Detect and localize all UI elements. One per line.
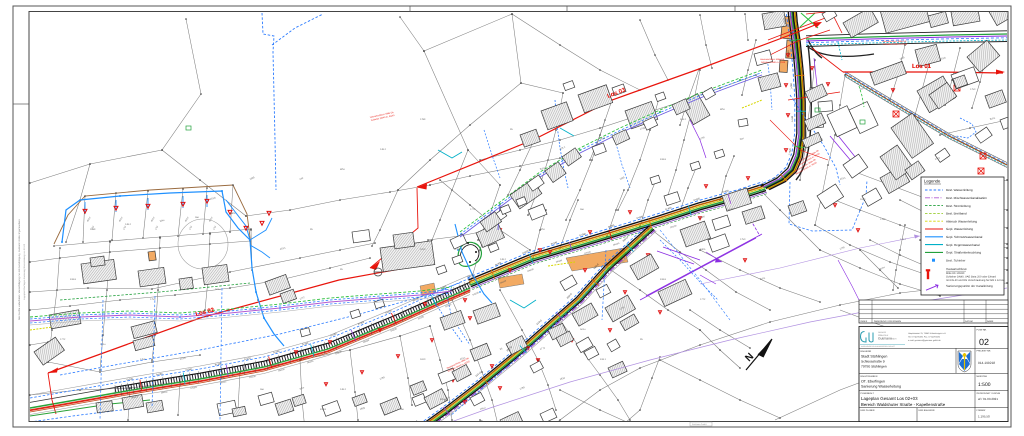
- svg-text:GmbH: GmbH: [890, 338, 897, 341]
- svg-text:1750: 1750: [740, 238, 746, 241]
- svg-text:Best. Schieber: Best. Schieber: [946, 258, 966, 262]
- svg-text:Best. Stromleitung: Best. Stromleitung: [946, 204, 971, 208]
- svg-text:Whs: Whs: [540, 228, 546, 231]
- svg-text:Best. Wasserleitung: Best. Wasserleitung: [946, 188, 973, 192]
- svg-text:af / 01.09.2021: af / 01.09.2021: [978, 397, 998, 401]
- svg-text:Schieber DN40 m. KG40: Schieber DN40 m. KG40: [761, 61, 786, 64]
- svg-text:INGENIEURE+PLANUNGSGESELLSCHAF: INGENIEURE+PLANUNGSGESELLSCHAFT: [861, 345, 895, 348]
- svg-text:1789: 1789: [455, 248, 461, 251]
- svg-text:Los 01: Los 01: [912, 63, 932, 70]
- svg-text:FORMAT: FORMAT: [977, 409, 987, 412]
- svg-text:1810: 1810: [420, 358, 426, 361]
- svg-text:1772: 1772: [470, 208, 476, 211]
- svg-text:1805: 1805: [230, 212, 236, 215]
- svg-text:433.6: 433.6: [320, 408, 327, 411]
- svg-text:Sanierungspunkte der Kanalleit: Sanierungspunkte der Kanalleitung: [946, 284, 993, 288]
- svg-text:1789: 1789: [880, 218, 886, 221]
- svg-text:PLANINHALT: PLANINHALT: [861, 392, 875, 395]
- svg-text:146.2: 146.2: [900, 238, 907, 241]
- svg-text:1+060: 1+060: [790, 82, 793, 89]
- svg-text:DER PLANER: DER PLANER: [861, 409, 875, 412]
- svg-text:Schlossstraße 9: Schlossstraße 9: [861, 360, 885, 364]
- svg-text:79780 Stühlingen: 79780 Stühlingen: [861, 365, 887, 369]
- svg-text:Bereich Waldshuter Straße - Ka: Bereich Waldshuter Straße - Kapellenstra…: [861, 402, 946, 407]
- svg-text:PLAN-NR.: PLAN-NR.: [977, 329, 988, 332]
- svg-text:Gepl. Schmutzwasserkanal: Gepl. Schmutzwasserkanal: [946, 235, 983, 239]
- svg-text:1.195.50: 1.195.50: [978, 415, 990, 419]
- svg-text:Sanierung Wasserleitung: Sanierung Wasserleitung: [861, 385, 901, 389]
- svg-text:Lageplan Gesamt Los 02+03: Lageplan Gesamt Los 02+03: [861, 396, 918, 401]
- svg-text:Schieber DN40 m. KG40: Schieber DN40 m. KG40: [883, 43, 908, 46]
- svg-text:1750: 1750: [140, 358, 146, 361]
- svg-text:Whs: Whs: [720, 108, 726, 111]
- svg-text:e-mail: gutmann@gutmann-gmbh.: e-mail: gutmann@gutmann-gmbh.de: [908, 339, 941, 342]
- svg-text:014-190218: 014-190218: [978, 361, 995, 365]
- svg-text:146.2: 146.2: [500, 258, 507, 261]
- svg-text:Zeichnen GmbH: Zeichnen GmbH: [692, 423, 707, 426]
- svg-text:1789: 1789: [90, 228, 96, 231]
- svg-text:1810: 1810: [420, 248, 426, 251]
- svg-text:Legende: Legende: [924, 179, 941, 184]
- svg-text:Stadt Stühlingen: Stadt Stühlingen: [861, 355, 887, 359]
- svg-text:1:500: 1:500: [978, 382, 991, 388]
- svg-text:Gar: Gar: [195, 216, 199, 219]
- svg-text:Hauptstrasse 76, 79862 Hohente: Hauptstrasse 76, 79862 Hohentengen a.H.: [908, 332, 946, 335]
- svg-text:433.6: 433.6: [660, 158, 667, 161]
- svg-text:DER BAUHERR: DER BAUHERR: [919, 409, 935, 412]
- svg-text:Lageplan Eberfingen Sanierung: Lageplan Eberfingen Sanierung Wasserleit…: [23, 243, 26, 300]
- svg-text:1810: 1810: [860, 198, 866, 201]
- svg-text:Best. Mischwasserkanalisation: Best. Mischwasserkanalisation: [946, 196, 987, 200]
- svg-text:Gepl. Regenwasserkanal: Gepl. Regenwasserkanal: [946, 243, 980, 247]
- svg-text:433.1: 433.1: [600, 358, 607, 361]
- svg-text:DATUM: DATUM: [965, 320, 973, 323]
- svg-text:mit KG 40 und RG Verschraubung: mit KG 40 und RG Verschraubung N2 Gbl 1 …: [946, 279, 1005, 282]
- svg-text:1750: 1750: [970, 88, 976, 91]
- svg-text:Gar: Gar: [580, 208, 584, 211]
- svg-text:146.2: 146.2: [680, 118, 687, 121]
- svg-text:Abbruch Wasserleitung: Abbruch Wasserleitung: [946, 219, 977, 223]
- svg-text:Gar: Gar: [400, 408, 404, 411]
- svg-text:Schu: Schu: [215, 288, 221, 291]
- svg-text:146.2: 146.2: [340, 388, 347, 391]
- svg-text:Schu: Schu: [100, 343, 106, 346]
- svg-text:GEZEICHNET / DATUM: GEZEICHNET / DATUM: [977, 392, 1001, 395]
- svg-text:Hausanschluss:: Hausanschluss:: [946, 267, 967, 271]
- svg-text:Hausanschluss: Mitte Db: Hausanschluss: Mitte Db: [882, 40, 907, 43]
- svg-text:1805: 1805: [700, 248, 706, 251]
- svg-text:Heinrich: Heinrich: [878, 331, 887, 334]
- svg-text:BAUVORHABEN: BAUVORHABEN: [861, 375, 878, 378]
- svg-text:433.6: 433.6: [70, 278, 77, 281]
- svg-text:ÄNDERUNG / FREIGABEN: ÄNDERUNG / FREIGABEN: [874, 320, 901, 323]
- svg-text:Hausanschluss: Mitte Db: Hausanschluss: Mitte Db: [760, 58, 785, 61]
- svg-text:Gar: Gar: [260, 388, 264, 391]
- svg-text:BAUHERR: BAUHERR: [861, 350, 872, 353]
- svg-text:MASSTAB: MASSTAB: [977, 375, 988, 378]
- svg-text:Whs: Whs: [340, 168, 346, 171]
- svg-text:Gepl. Straßenbeleuchtung: Gepl. Straßenbeleuchtung: [946, 251, 981, 255]
- svg-text:INDEX: INDEX: [861, 320, 868, 323]
- svg-text:Best. Breitband: Best. Breitband: [946, 212, 967, 216]
- svg-text:PROJEKT-NR.: PROJEKT-NR.: [977, 350, 992, 353]
- svg-text:1772: 1772: [700, 298, 706, 301]
- svg-text:Tel. 07742/91081 Fax. 07742/: Tel. 07742/91081 Fax. 07742/91082: [908, 336, 941, 339]
- svg-text:Alle Rechte vorbehalten. Vervi: Alle Rechte vorbehalten. Vervielfältigun…: [18, 219, 21, 320]
- svg-text:OT. Eberfingen: OT. Eberfingen: [861, 380, 885, 384]
- svg-text:NAME: NAME: [987, 320, 994, 323]
- svg-text:1789: 1789: [420, 118, 426, 121]
- svg-text:Gepl. Wasserleitung: Gepl. Wasserleitung: [946, 227, 973, 231]
- svg-text:146.2: 146.2: [125, 223, 132, 226]
- svg-text:1+040: 1+040: [791, 115, 794, 122]
- svg-text:02: 02: [979, 337, 989, 347]
- svg-text:1772: 1772: [60, 338, 66, 341]
- svg-text:433.6: 433.6: [660, 278, 667, 281]
- svg-text:Schu: Schu: [580, 328, 586, 331]
- svg-text:146.2: 146.2: [380, 148, 387, 151]
